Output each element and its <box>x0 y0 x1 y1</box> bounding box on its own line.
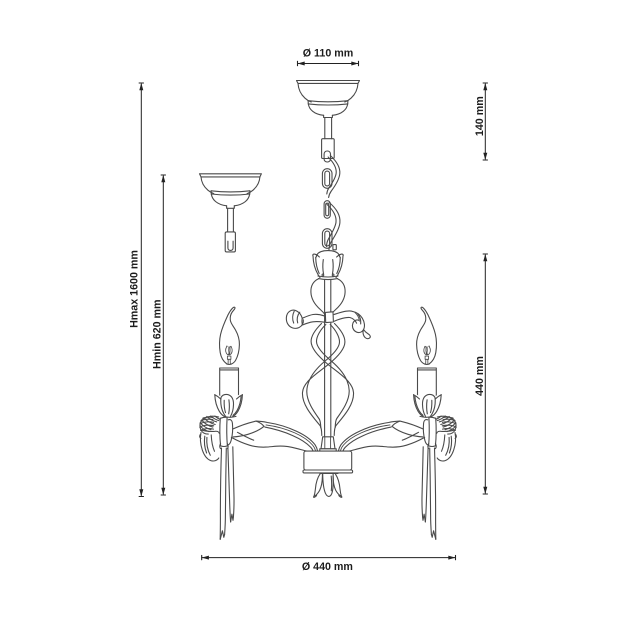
svg-text:140 mm: 140 mm <box>474 96 486 136</box>
svg-text:Hmin 620 mm: Hmin 620 mm <box>152 299 164 369</box>
svg-text:Ø 440 mm: Ø 440 mm <box>302 561 353 573</box>
svg-text:Hmax 1600 mm: Hmax 1600 mm <box>129 250 141 328</box>
svg-text:Ø 110 mm: Ø 110 mm <box>303 48 354 60</box>
svg-text:440 mm: 440 mm <box>474 356 486 396</box>
